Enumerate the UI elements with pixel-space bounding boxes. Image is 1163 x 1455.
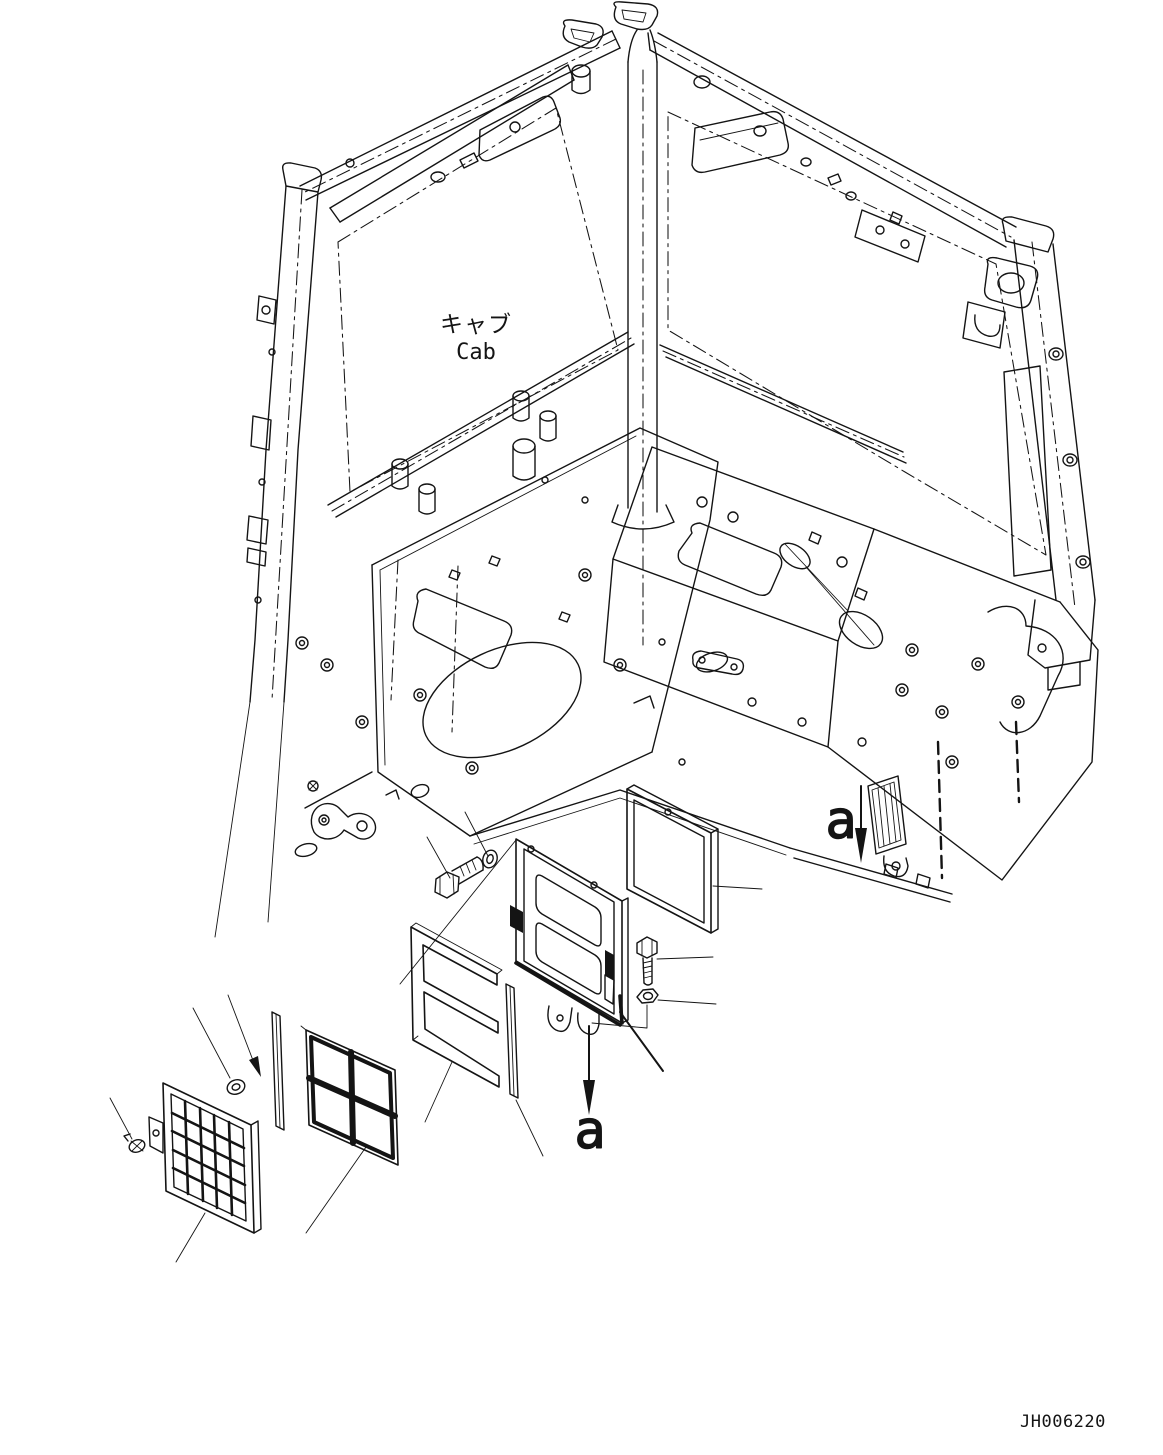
window-sills — [328, 332, 906, 517]
section-arrow-right — [855, 828, 867, 863]
section-marker-bottom: a — [574, 1026, 605, 1161]
deck-bolts — [896, 644, 1024, 768]
bolt-right — [637, 937, 657, 985]
section-marker-right: a — [825, 786, 867, 863]
trim-strip-left — [272, 1012, 284, 1130]
mesh-grille — [149, 1083, 261, 1233]
floor-assembly — [296, 391, 790, 855]
left-pillar — [215, 163, 431, 937]
filter-holder-frame — [411, 923, 502, 1087]
floor-bolts — [296, 569, 626, 774]
floor-standoffs — [392, 391, 556, 514]
cab-label-japanese: キャブ — [440, 312, 512, 338]
air-intake-opening — [868, 776, 908, 877]
drawing-number: JH006220 — [1020, 1412, 1106, 1432]
cab-label-english: Cab — [456, 340, 496, 365]
access-door — [510, 839, 628, 1034]
exploded-parts-diagram: a a キャブ Cab JH006220 — [0, 0, 1163, 1455]
heater-console — [604, 447, 889, 747]
door-hinge-block — [510, 905, 523, 933]
section-label-right: a — [825, 791, 856, 851]
grommet-washer — [225, 1077, 247, 1096]
roof-rails — [300, 31, 1016, 247]
parts-diagram-page: a a キャブ Cab JH006220 — [0, 0, 1163, 1455]
bolt-upper — [435, 857, 483, 898]
air-filter — [301, 1026, 398, 1165]
roof-rail-fittings — [692, 76, 925, 262]
nut-right — [637, 989, 658, 1003]
grille-grid — [172, 1101, 245, 1215]
trim-strip-right — [506, 984, 518, 1098]
section-label-bottom: a — [574, 1101, 605, 1161]
center-post — [612, 30, 674, 645]
cab-label: キャブ Cab — [440, 312, 512, 365]
exploded-parts — [124, 785, 718, 1233]
small-arrowhead — [249, 1056, 261, 1077]
wing-knob — [124, 1134, 147, 1154]
